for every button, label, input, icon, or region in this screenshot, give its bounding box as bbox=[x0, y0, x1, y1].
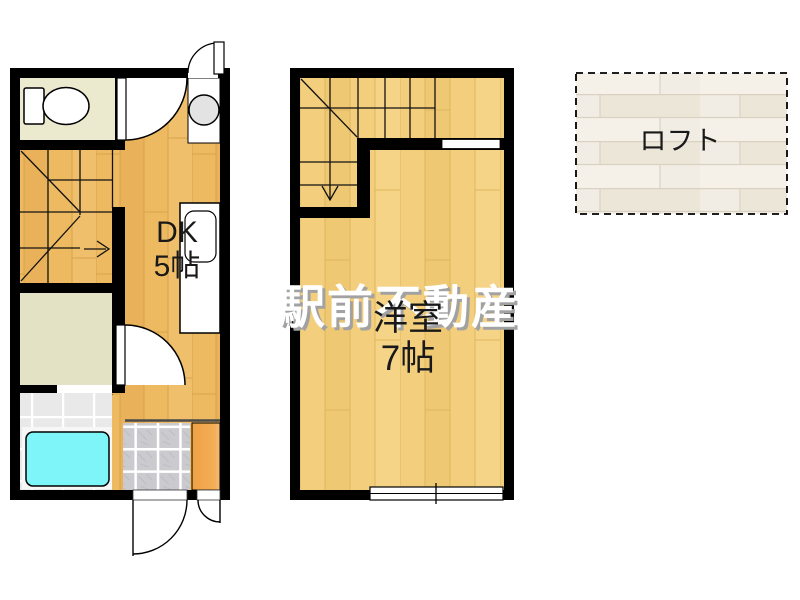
entrance-opening-main bbox=[133, 490, 187, 500]
washroom-floor bbox=[20, 293, 112, 385]
genkan-tile bbox=[123, 423, 190, 490]
shoe-cabinet bbox=[192, 423, 220, 490]
dk-label-line2: 5帖 bbox=[117, 250, 237, 284]
toilet-icon bbox=[24, 88, 89, 125]
stair-interior-window bbox=[442, 140, 500, 149]
bathroom-door-threshold bbox=[57, 385, 112, 393]
dk-label-line1: DK bbox=[117, 216, 237, 250]
bathtub bbox=[26, 432, 109, 486]
floorplan-page: 駅前不動産 DK 5帖 洋室 7帖 ロフト bbox=[0, 0, 800, 600]
entrance-opening-side bbox=[197, 490, 220, 500]
western-room-label: 洋室 7帖 bbox=[346, 299, 470, 379]
entrance-door-main bbox=[133, 500, 187, 556]
stairs-bottom-wall bbox=[10, 283, 112, 293]
stair-bottom-wall-2f bbox=[300, 207, 357, 218]
washroom-bottom-wall bbox=[10, 385, 57, 393]
backdoor-leaf bbox=[214, 42, 224, 74]
dk-room-label: DK 5帖 bbox=[117, 216, 237, 284]
washing-machine-icon bbox=[189, 95, 219, 125]
loft-label: ロフト bbox=[628, 126, 732, 156]
hall-door-leaf bbox=[117, 78, 126, 140]
western-room-label-line2: 7帖 bbox=[346, 339, 470, 379]
toilet-bottom-wall bbox=[10, 140, 125, 150]
western-room-label-line1: 洋室 bbox=[346, 299, 470, 339]
entrance-door-child bbox=[198, 500, 220, 523]
stair-side-wall bbox=[357, 150, 370, 218]
unit-1f bbox=[10, 42, 230, 556]
washroom-door-leaf bbox=[116, 325, 125, 385]
